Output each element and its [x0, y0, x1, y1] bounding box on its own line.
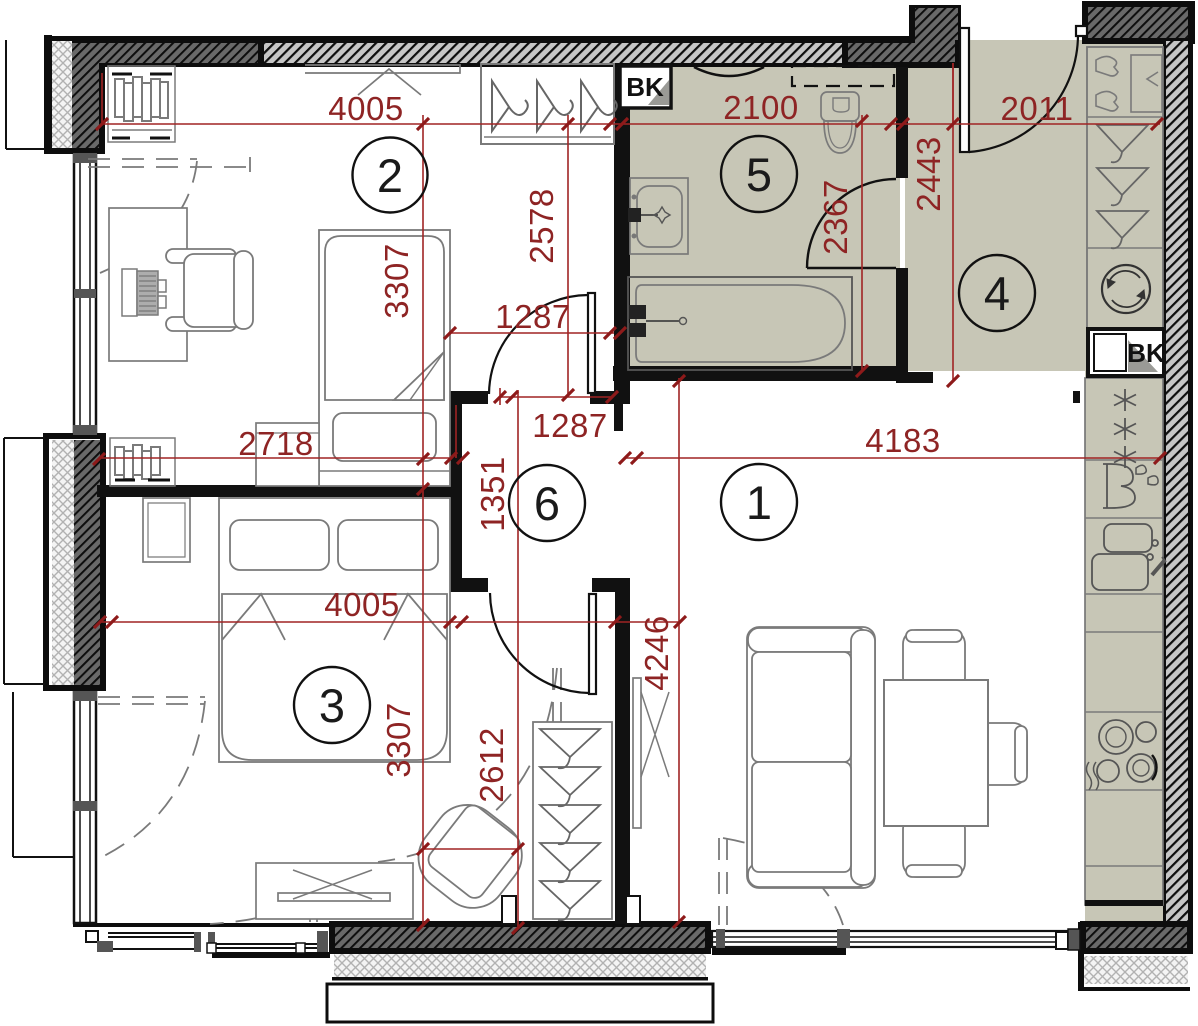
svg-text:3307: 3307 [380, 702, 417, 777]
svg-text:2011: 2011 [1001, 90, 1074, 127]
svg-text:2443: 2443 [910, 136, 947, 211]
svg-text:4005: 4005 [328, 90, 403, 127]
svg-text:2367: 2367 [817, 179, 854, 254]
svg-text:2612: 2612 [473, 727, 510, 802]
svg-text:4183: 4183 [865, 422, 940, 459]
svg-text:2: 2 [377, 149, 403, 202]
svg-text:5: 5 [746, 148, 772, 201]
svg-text:4005: 4005 [324, 586, 399, 623]
svg-text:1287: 1287 [495, 298, 570, 335]
svg-text:4246: 4246 [638, 615, 675, 690]
svg-text:2100: 2100 [723, 89, 798, 126]
svg-text:2718: 2718 [238, 425, 313, 462]
svg-text:3307: 3307 [378, 243, 415, 318]
svg-text:3: 3 [319, 679, 345, 732]
svg-text:BK: BK [626, 72, 664, 102]
svg-text:1351: 1351 [474, 456, 511, 531]
svg-text:2578: 2578 [523, 188, 560, 263]
svg-text:BK: BK [1127, 338, 1165, 368]
svg-text:4: 4 [984, 267, 1010, 320]
svg-text:6: 6 [534, 477, 560, 530]
svg-text:1287: 1287 [532, 407, 607, 444]
svg-text:1: 1 [746, 476, 772, 529]
